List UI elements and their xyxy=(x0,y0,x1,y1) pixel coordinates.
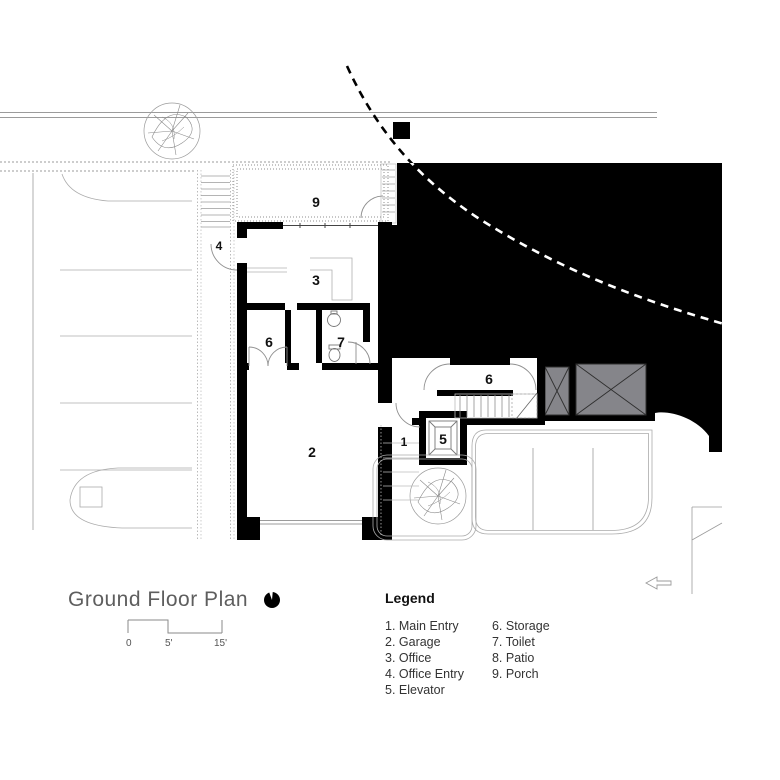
legend-item-main-entry: 1. Main Entry xyxy=(385,620,464,633)
interior-stair xyxy=(455,393,537,419)
exterior-stair xyxy=(201,176,230,227)
scale-bar: 0 5' 15' xyxy=(126,618,236,650)
driveway-lines xyxy=(692,507,722,594)
room-label-elevator: 5 xyxy=(439,431,447,447)
scale-label-15: 15' xyxy=(214,638,227,649)
sidewalk-strip xyxy=(198,170,235,540)
room-label-main-entry: 1 xyxy=(401,435,408,449)
legend-item-storage: 6. Storage xyxy=(492,620,550,633)
office-casework xyxy=(247,258,352,300)
scale-label-0: 0 xyxy=(126,638,132,649)
room-label-porch: 9 xyxy=(312,194,320,210)
patio-outline xyxy=(472,430,652,534)
room-label-storage-right: 6 xyxy=(485,371,493,387)
scale-label-5: 5' xyxy=(165,638,172,649)
window-band xyxy=(283,223,378,228)
utility-marker xyxy=(393,122,410,139)
legend: Legend 1. Main Entry 2. Garage 3. Office… xyxy=(385,590,550,697)
planter-square xyxy=(80,487,102,507)
curb-corner xyxy=(62,174,192,201)
shaft-boxes xyxy=(545,364,646,415)
room-label-storage-left: 6 xyxy=(265,334,273,350)
floor-plan-sheet: 9 4 3 6 7 2 1 5 6 Ground Floor Plan 0 5'… xyxy=(0,0,780,780)
title-block: Ground Floor Plan xyxy=(68,588,281,612)
room-label-toilet: 7 xyxy=(337,334,345,350)
legend-item-elevator: 5. Elevator xyxy=(385,684,464,697)
room-label-office-entry: 4 xyxy=(216,239,223,253)
sink-icon xyxy=(328,314,341,327)
yard-tree xyxy=(410,468,466,524)
legend-item-porch: 9. Porch xyxy=(492,668,550,681)
room-label-garage: 2 xyxy=(308,444,316,460)
legend-column-1: 1. Main Entry 2. Garage 3. Office 4. Off… xyxy=(385,620,464,697)
legend-heading: Legend xyxy=(385,590,550,606)
legend-item-garage: 2. Garage xyxy=(385,636,464,649)
legend-item-office: 3. Office xyxy=(385,652,464,665)
legend-item-patio: 8. Patio xyxy=(492,652,550,665)
parking-lot xyxy=(60,174,192,528)
curb-corner xyxy=(70,468,192,528)
room-label-office: 3 xyxy=(312,272,320,288)
house-walls xyxy=(233,165,392,540)
toilet-icon xyxy=(329,349,340,362)
legend-column-2: 6. Storage 7. Toilet 8. Patio 9. Porch xyxy=(492,620,550,697)
porch-border xyxy=(233,165,388,221)
direction-arrow-icon xyxy=(646,577,671,589)
north-arrow-icon xyxy=(263,591,281,609)
garage-door xyxy=(260,521,362,525)
stair-break-line xyxy=(516,393,537,419)
page-title: Ground Floor Plan xyxy=(68,588,248,612)
legend-item-toilet: 7. Toilet xyxy=(492,636,550,649)
street-tree xyxy=(144,103,200,159)
legend-item-office-entry: 4. Office Entry xyxy=(385,668,464,681)
scale-bar-graphic xyxy=(126,618,236,636)
